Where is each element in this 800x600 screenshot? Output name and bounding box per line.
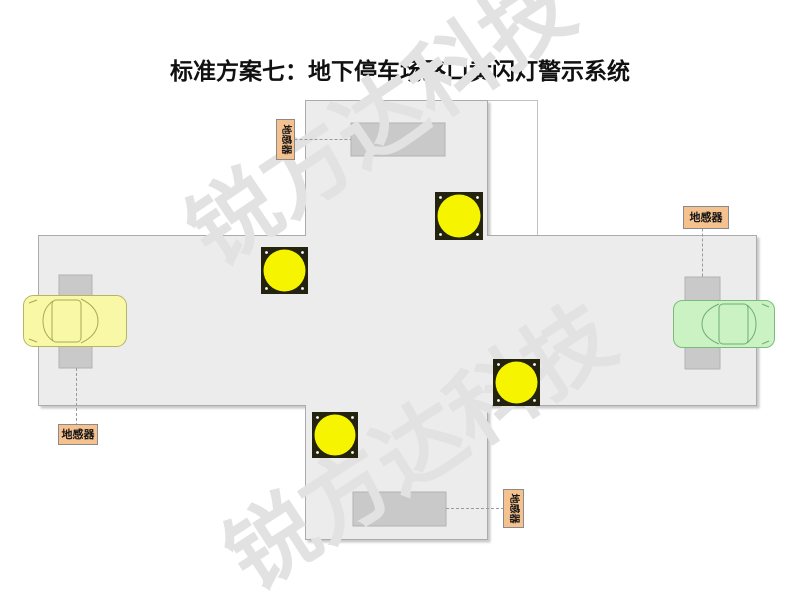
diagram-page: 标准方案七：地下停车场路口黄闪灯警示系统 锐方达科技 锐方达科技 xyxy=(0,0,800,600)
car-body xyxy=(674,301,775,348)
car-body xyxy=(24,296,127,347)
sensor-label-left: 地感器 xyxy=(59,425,98,445)
light-screw xyxy=(497,363,500,366)
light-screw xyxy=(301,287,304,290)
sensor-label-bottom: 地感器 xyxy=(504,490,524,528)
sensor-label-top: 地感器 xyxy=(277,120,295,160)
flash-light-left xyxy=(261,247,308,294)
diagram-canvas: 标准方案七：地下停车场路口黄闪灯警示系统 锐方达科技 锐方达科技 xyxy=(0,0,800,600)
light-screw xyxy=(301,251,304,254)
car-right-green xyxy=(674,301,775,348)
light-screw xyxy=(476,196,479,199)
light-screw xyxy=(497,399,500,402)
light-lens xyxy=(315,415,356,456)
light-screw xyxy=(533,399,536,402)
sensor-label-right: 地感器 xyxy=(684,207,729,229)
light-screw xyxy=(439,233,442,236)
light-screw xyxy=(533,363,536,366)
light-screw xyxy=(265,251,268,254)
light-screw xyxy=(351,416,354,419)
road-top-extension xyxy=(488,101,538,236)
label-text: 地感器 xyxy=(280,125,293,156)
flash-light-right xyxy=(493,359,540,406)
flash-light-bottom xyxy=(312,412,358,458)
car-left-yellow xyxy=(24,296,127,347)
light-lens xyxy=(496,362,538,404)
label-text: 地感器 xyxy=(690,210,724,224)
light-screw xyxy=(351,451,354,454)
light-lens xyxy=(438,195,481,238)
light-screw xyxy=(439,196,442,199)
label-text: 地感器 xyxy=(62,427,96,441)
flash-light-top xyxy=(435,192,483,240)
light-screw xyxy=(265,287,268,290)
light-lens xyxy=(264,250,306,292)
light-screw xyxy=(476,233,479,236)
light-screw xyxy=(316,451,319,454)
light-screw xyxy=(316,416,319,419)
label-text: 地感器 xyxy=(508,494,521,525)
